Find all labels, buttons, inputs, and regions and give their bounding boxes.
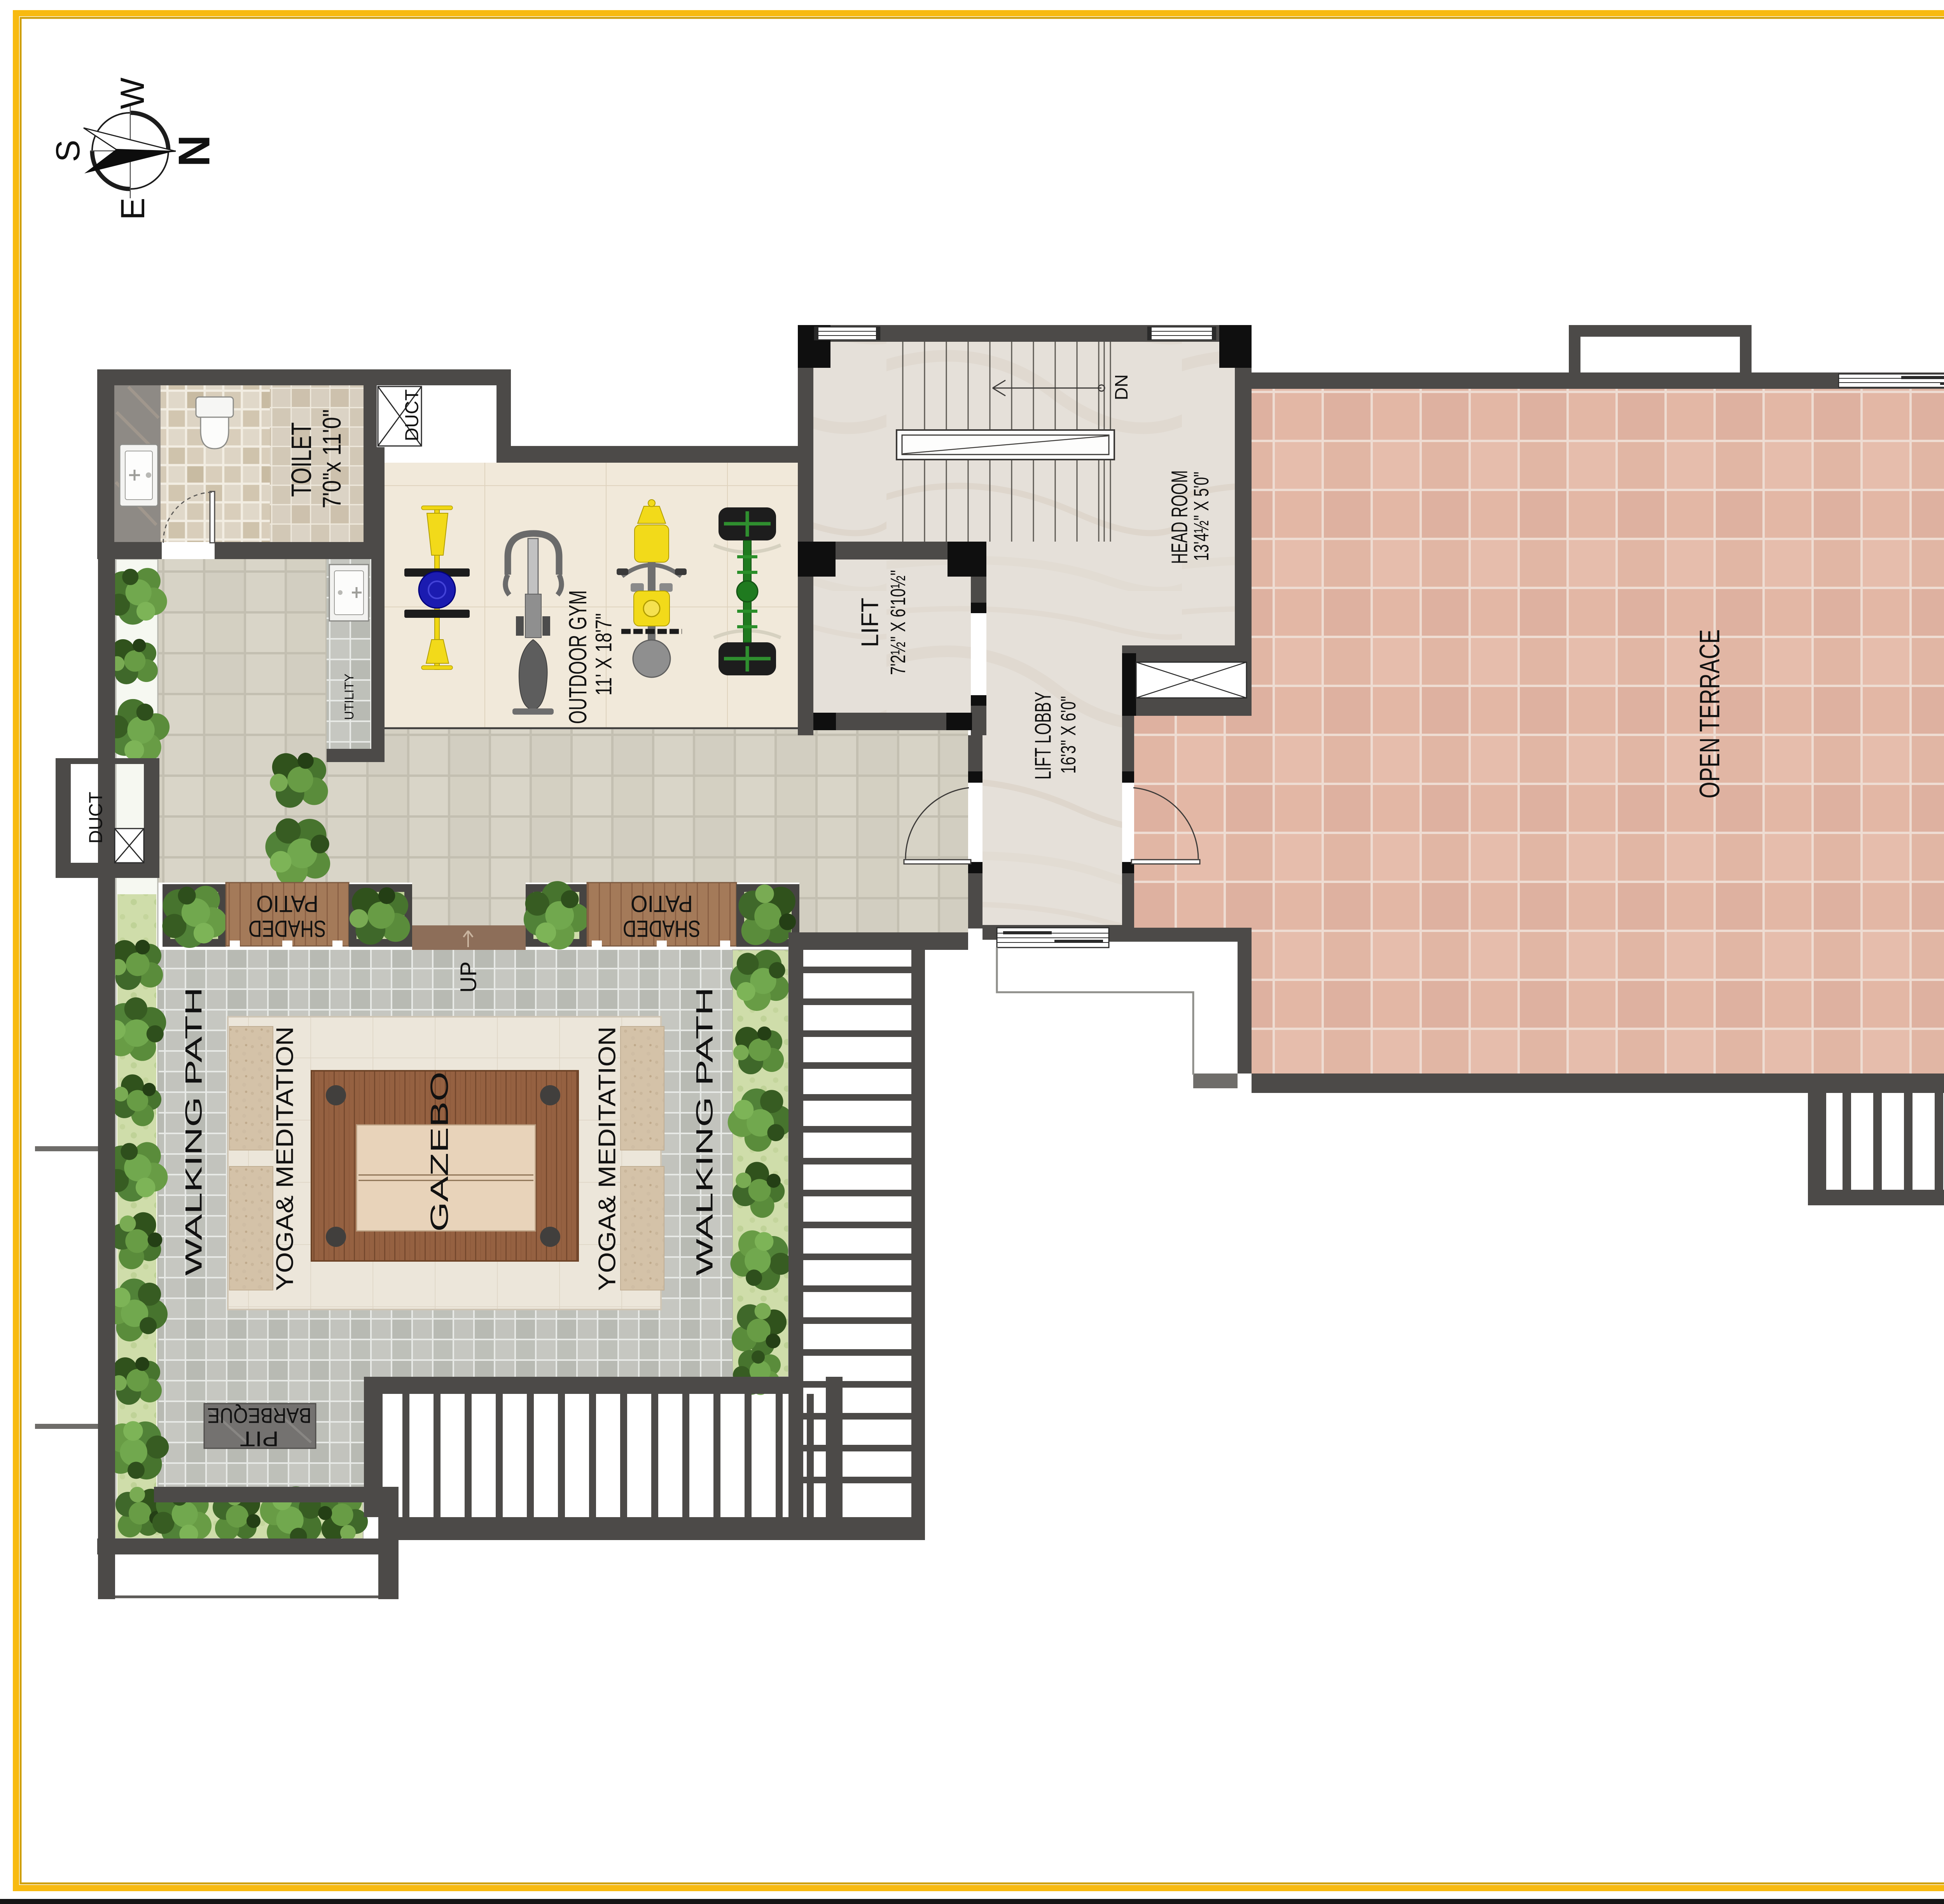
svg-text:S: S (49, 140, 87, 162)
svg-text:13'4½" X 5'0": 13'4½" X 5'0" (1190, 472, 1213, 561)
svg-text:PIT: PIT (240, 1427, 279, 1451)
svg-text:YOGA& MEDITATION: YOGA& MEDITATION (594, 1026, 621, 1291)
svg-text:OPEN TERRACE: OPEN TERRACE (1694, 629, 1725, 799)
svg-text:7'0"x 11'0": 7'0"x 11'0" (317, 409, 346, 509)
svg-text:BARBEQUE: BARBEQUE (207, 1404, 311, 1428)
svg-text:DUCT: DUCT (86, 792, 107, 843)
svg-text:TOILET: TOILET (286, 422, 317, 497)
svg-text:PATIO: PATIO (256, 891, 318, 917)
svg-text:DUCT: DUCT (402, 389, 423, 441)
svg-text:YOGA& MEDITATION: YOGA& MEDITATION (272, 1026, 299, 1291)
svg-text:GAZEBO: GAZEBO (425, 1072, 453, 1232)
svg-text:UP: UP (456, 962, 481, 993)
svg-text:PATIO: PATIO (631, 891, 693, 917)
svg-text:11' X 18'7": 11' X 18'7" (591, 613, 617, 696)
svg-text:LIFT LOBBY: LIFT LOBBY (1031, 692, 1056, 780)
svg-text:SHADED: SHADED (623, 916, 701, 942)
svg-text:HEAD ROOM: HEAD ROOM (1167, 470, 1192, 564)
svg-text:16'3" X 6'0": 16'3" X 6'0" (1057, 696, 1080, 774)
svg-text:UTILITY: UTILITY (342, 673, 356, 720)
svg-text:LIFT: LIFT (857, 598, 884, 647)
svg-text:WALKING PATH: WALKING PATH (692, 987, 718, 1276)
svg-text:E: E (114, 198, 152, 220)
svg-text:N: N (170, 135, 219, 167)
svg-text:WALKING PATH: WALKING PATH (181, 987, 207, 1276)
svg-text:7'2½" X 6'10½": 7'2½" X 6'10½" (886, 570, 910, 675)
svg-text:OUTDOOR GYM: OUTDOOR GYM (564, 590, 592, 724)
svg-text:DN: DN (1111, 374, 1131, 400)
svg-text:W: W (114, 77, 151, 109)
svg-text:SHADED: SHADED (248, 916, 326, 942)
